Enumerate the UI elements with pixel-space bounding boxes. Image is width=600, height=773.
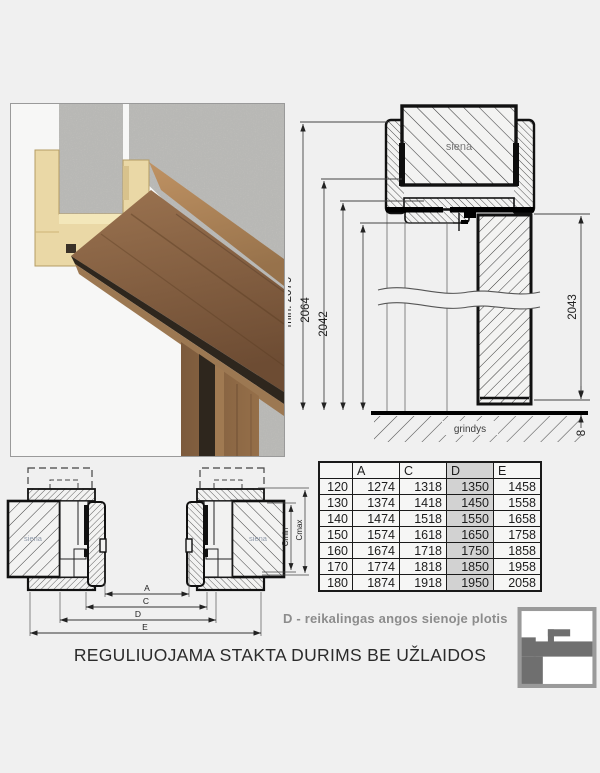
seal-detail — [464, 212, 476, 218]
table-row: 1301374141814501558 — [319, 495, 541, 511]
wall-label: siena — [446, 141, 473, 153]
dim-2064: 2064 — [300, 297, 312, 323]
table-header-cell — [319, 462, 353, 479]
table-cell: 1618 — [400, 527, 447, 543]
page-title: REGULIUOJAMA STAKTA DURIMS BE UŽLAIDOS — [0, 645, 560, 666]
dim-cmax: Cmax — [295, 520, 304, 541]
table-cell: 1574 — [353, 527, 400, 543]
d-dimension-caption: D - reikalingas angos sienoje plotis — [283, 611, 523, 626]
brand-logo — [517, 607, 597, 688]
table-cell: 1458 — [494, 479, 542, 495]
door-height-dimension — [534, 214, 590, 428]
frame-corner-photo — [10, 103, 285, 457]
table-row: 1501574161816501758 — [319, 527, 541, 543]
vertical-section-drawing: siena 2134 min — [288, 100, 600, 452]
table-cell: 130 — [319, 495, 353, 511]
dim-e: E — [142, 622, 148, 632]
size-table: ACDE 12012741318135014581301374141814501… — [318, 461, 542, 592]
table-cell: 160 — [319, 543, 353, 559]
dim-cmin: Cmin — [281, 528, 290, 547]
table-cell: 1750 — [447, 543, 494, 559]
table-cell: 1374 — [353, 495, 400, 511]
size-table-body: 1201274131813501458130137414181450155814… — [319, 479, 541, 592]
table-header-cell: E — [494, 462, 542, 479]
table-cell: 1874 — [353, 575, 400, 592]
floor-label: grindys — [454, 424, 486, 435]
table-cell: 150 — [319, 527, 353, 543]
table-cell: 1350 — [447, 479, 494, 495]
table-cell: 1718 — [400, 543, 447, 559]
table-cell: 1758 — [494, 527, 542, 543]
dim-d: D — [135, 609, 141, 619]
table-cell: 1950 — [447, 575, 494, 592]
wall-label-right: siena — [249, 534, 268, 543]
table-cell: 1658 — [494, 511, 542, 527]
table-row: 1801874191819502058 — [319, 575, 541, 592]
table-cell: 1918 — [400, 575, 447, 592]
photo-render — [11, 104, 284, 456]
table-cell: 140 — [319, 511, 353, 527]
table-cell: 1558 — [494, 495, 542, 511]
table-cell: 1958 — [494, 559, 542, 575]
table-header-cell: C — [400, 462, 447, 479]
table-cell: 1774 — [353, 559, 400, 575]
jamb-assembly — [8, 468, 106, 590]
table-cell: 1418 — [400, 495, 447, 511]
table-row: 1701774181818501958 — [319, 559, 541, 575]
table-cell: 1650 — [447, 527, 494, 543]
dim-2043: 2043 — [567, 294, 579, 320]
plan-section-drawing: siena siena Cmin Cmax — [5, 458, 317, 640]
table-cell: 1550 — [447, 511, 494, 527]
table-cell: 1450 — [447, 495, 494, 511]
table-cell: 1518 — [400, 511, 447, 527]
table-cell: 1818 — [400, 559, 447, 575]
dim-min-2079: min. 2079 — [288, 277, 294, 328]
table-cell: 2058 — [494, 575, 542, 592]
dim-a: A — [144, 583, 150, 593]
table-cell: 120 — [319, 479, 353, 495]
table-cell: 1858 — [494, 543, 542, 559]
table-cell: 1318 — [400, 479, 447, 495]
table-row: 1401474151815501658 — [319, 511, 541, 527]
table-row: 1201274131813501458 — [319, 479, 541, 495]
frame-profile-logo-icon — [517, 607, 597, 688]
wall-label-left: siena — [24, 534, 43, 543]
dim-2042: 2042 — [318, 311, 330, 337]
table-cell: 1474 — [353, 511, 400, 527]
dim-c: C — [143, 596, 149, 606]
table-cell: 1850 — [447, 559, 494, 575]
size-table-header-row: ACDE — [319, 462, 541, 479]
table-row: 1601674171817501858 — [319, 543, 541, 559]
table-cell: 170 — [319, 559, 353, 575]
table-cell: 1274 — [353, 479, 400, 495]
table-header-cell: A — [353, 462, 400, 479]
table-cell: 1674 — [353, 543, 400, 559]
table-header-cell: D — [447, 462, 494, 479]
datasheet-page: siena 2134 min — [0, 0, 600, 773]
table-cell: 180 — [319, 575, 353, 592]
